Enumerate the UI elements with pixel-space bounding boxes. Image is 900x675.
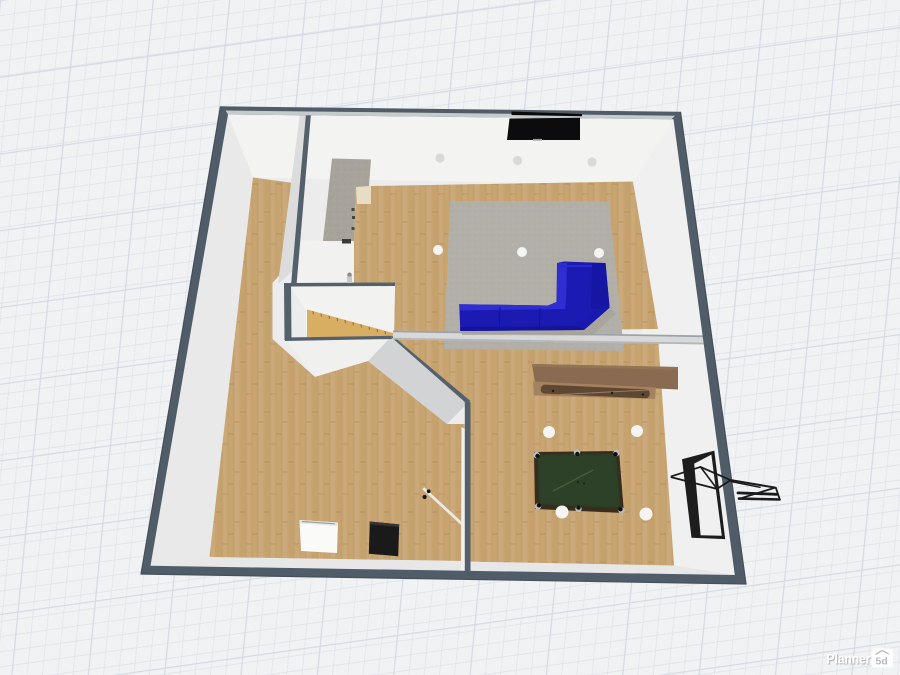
svg-text:5d: 5d (876, 656, 888, 668)
svg-text:Planner: Planner (827, 651, 871, 667)
